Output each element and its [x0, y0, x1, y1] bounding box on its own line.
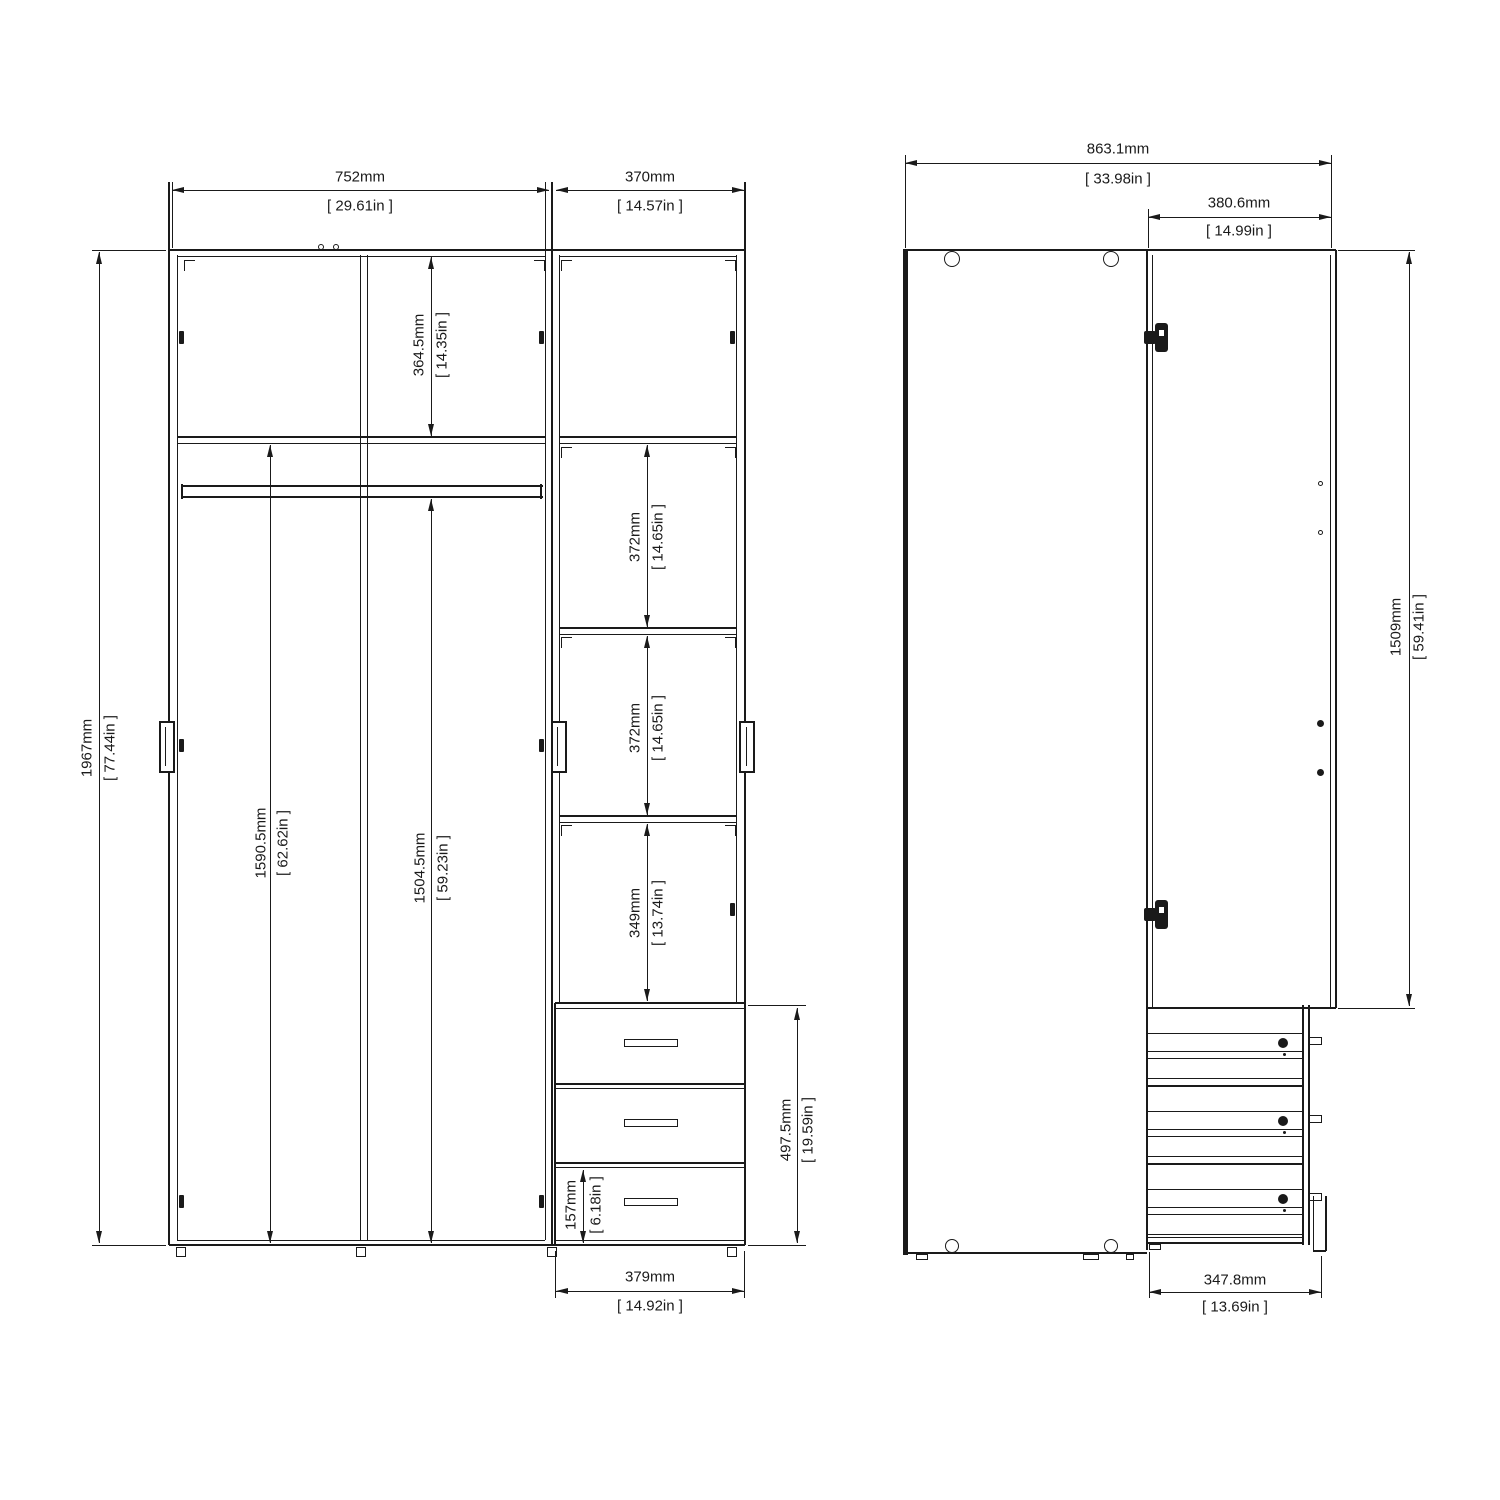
dimension-label-in: [ 33.98in ]	[1085, 172, 1151, 187]
dimension-arrow-icon	[794, 1008, 800, 1020]
dimension-label-mm: 157mm	[564, 1180, 579, 1230]
shelf-bracket-icon	[725, 637, 736, 648]
dimension-arrow-icon	[267, 445, 273, 457]
dimension-label-mm: 364.5mm	[412, 314, 427, 377]
drawer-knob	[1278, 1194, 1288, 1204]
dimension-arrow-icon	[732, 1288, 744, 1294]
door-handle-detail	[557, 727, 558, 766]
hinge-mark-icon	[539, 1195, 544, 1208]
dimension-arrow-icon	[172, 187, 184, 193]
drawer-side-rail	[1147, 1051, 1303, 1052]
dimension-arrow-icon	[644, 636, 650, 648]
cabinet-right-edge-inner	[736, 255, 737, 1003]
side-panel-back-edge	[903, 250, 908, 1255]
dimension-arrow-icon	[1406, 252, 1412, 264]
dimension-label-in: [ 29.61in ]	[327, 199, 393, 214]
dimension-line	[1148, 217, 1331, 218]
dimension-label-mm: 349mm	[628, 888, 643, 938]
dimension-label-in: [ 77.44in ]	[103, 715, 118, 781]
drawer-handle	[624, 1039, 678, 1047]
drawer-handle	[624, 1119, 678, 1127]
drawer-side-rail	[1147, 1033, 1303, 1034]
hanging-rod	[182, 485, 543, 487]
dimension-arrow-icon	[732, 187, 744, 193]
cabinet-front-edge	[1146, 250, 1148, 1250]
runner-bracket	[1313, 1250, 1326, 1252]
drawer-runner-tab	[1309, 1115, 1322, 1123]
dimension-label-mm: 372mm	[628, 703, 643, 753]
shelf-bracket-icon	[561, 825, 572, 836]
drawer-side-rail	[1147, 1234, 1303, 1235]
dimension-line	[556, 190, 744, 191]
dimension-arrow-icon	[267, 1231, 273, 1243]
dimension-arrow-icon	[1406, 994, 1412, 1006]
cabinet-top-inner	[177, 256, 545, 257]
dimension-label-in: [ 59.41in ]	[1412, 594, 1427, 660]
screw-hole	[1318, 530, 1323, 535]
dimension-arrow-icon	[1319, 214, 1331, 220]
cabinet-left-edge-inner	[177, 255, 178, 1240]
shelf	[559, 627, 736, 629]
cam-dot	[318, 244, 324, 250]
dimension-label-mm: 1509mm	[1389, 598, 1404, 656]
dimension-arrow-icon	[537, 187, 549, 193]
drawer-side-rail	[1147, 1156, 1303, 1157]
dimension-line	[1409, 252, 1410, 1006]
dimension-line	[647, 824, 648, 1001]
shelf-bracket-icon	[561, 637, 572, 648]
shelf	[559, 436, 736, 438]
dimension-arrow-icon	[644, 989, 650, 1001]
shelf-bracket-icon	[725, 825, 736, 836]
hinge-mark-icon	[730, 903, 735, 916]
dimension-line	[797, 1008, 798, 1243]
foot	[547, 1247, 557, 1257]
door-edge-inner	[1152, 255, 1153, 1008]
drawer-side-rail	[1147, 1214, 1303, 1215]
dimension-arrow-icon	[1149, 1289, 1161, 1295]
shelf	[559, 443, 736, 444]
dimension-arrow-icon	[428, 499, 434, 511]
shelf-bracket-icon	[561, 447, 572, 458]
dimension-arrow-icon	[644, 803, 650, 815]
dimension-label-mm: 497.5mm	[779, 1099, 794, 1162]
hinge-icon	[1155, 323, 1168, 352]
drawer-divider	[555, 1088, 745, 1089]
dimension-arrow-icon	[580, 1170, 586, 1182]
dimension-label-mm: 370mm	[625, 170, 675, 185]
dimension-arrow-icon	[96, 252, 102, 264]
hinge-icon	[1155, 900, 1168, 929]
hinge-icon	[1144, 908, 1156, 921]
drawer-knob-screw	[1283, 1131, 1286, 1134]
dimension-label-in: [ 14.92in ]	[617, 1299, 683, 1314]
foot	[356, 1247, 366, 1257]
drawer-side-top	[1147, 1163, 1303, 1165]
door-handle-detail	[165, 727, 166, 766]
shelf	[559, 634, 736, 635]
dimension-label-in: [ 59.23in ]	[436, 835, 451, 901]
drawer-knob-screw	[1283, 1053, 1286, 1056]
hanging-rod-end	[540, 484, 542, 499]
cam-dot	[333, 244, 339, 250]
dimension-label-in: [ 6.18in ]	[589, 1176, 604, 1234]
dimension-label-in: [ 62.62in ]	[276, 810, 291, 876]
dimension-label-in: [ 14.65in ]	[651, 695, 666, 761]
hinge-notch	[1159, 330, 1164, 336]
right-column-left-edge	[559, 255, 560, 1003]
door-handle	[159, 721, 175, 773]
dimension-arrow-icon	[580, 1231, 586, 1243]
dimension-arrow-icon	[556, 187, 568, 193]
cam-lock-circle	[945, 1239, 959, 1253]
cabinet-top-inner	[559, 256, 736, 257]
dimension-arrow-icon	[644, 824, 650, 836]
drawer-knob-screw	[1283, 1209, 1286, 1212]
shelf-bracket-icon	[725, 447, 736, 458]
hanging-rod	[182, 496, 543, 498]
drawer-divider	[555, 1083, 745, 1085]
dimension-label-in: [ 14.57in ]	[617, 199, 683, 214]
screw-hole	[1318, 481, 1323, 486]
shelf-bracket-icon	[561, 260, 572, 271]
dimension-label-mm: 1590.5mm	[254, 808, 269, 879]
cabinet-bottom	[169, 1244, 745, 1246]
center-divider	[360, 255, 361, 1240]
cabinet-bottom-inner	[177, 1240, 545, 1241]
dimension-label-in: [ 13.74in ]	[651, 880, 666, 946]
hinge-mark-icon	[179, 739, 184, 752]
dimension-label-mm: 379mm	[625, 1270, 675, 1285]
hinge-mark-icon	[730, 331, 735, 344]
drawer-side-bottom	[1147, 1237, 1303, 1238]
dimension-label-in: [ 14.99in ]	[1206, 224, 1272, 239]
drawer-side-top	[1147, 1085, 1303, 1087]
drawer-knob	[1278, 1116, 1288, 1126]
dimension-arrow-icon	[96, 1231, 102, 1243]
drawer-divider	[555, 1167, 745, 1168]
dimension-label-in: [ 14.65in ]	[651, 504, 666, 570]
dimension-label-mm: 1504.5mm	[413, 833, 428, 904]
shelf-bracket-icon	[725, 260, 736, 271]
dimension-line	[647, 445, 648, 627]
dimension-label-in: [ 19.59in ]	[801, 1097, 816, 1163]
dimension-line	[99, 252, 100, 1243]
drawer-side-bottom	[1147, 1242, 1303, 1244]
drawer-runner-tab	[1309, 1193, 1322, 1201]
dimension-arrow-icon	[905, 160, 917, 166]
center-divider	[367, 255, 368, 1240]
door-gap-line	[551, 182, 553, 1245]
door-handle	[551, 721, 567, 773]
hinge-icon	[1144, 331, 1156, 344]
wardrobe-technical-drawing: 752mm[ 29.61in ]370mm[ 14.57in ]1967mm[ …	[0, 0, 1500, 1500]
foot	[916, 1254, 928, 1260]
extension-line	[748, 1005, 806, 1006]
extension-line	[748, 1245, 806, 1246]
dimension-arrow-icon	[1309, 1289, 1321, 1295]
drawer-side-rail	[1147, 1129, 1303, 1130]
hinge-mark-icon	[179, 331, 184, 344]
dimension-label-mm: 752mm	[335, 170, 385, 185]
door-handle-detail	[746, 727, 747, 766]
dimension-line	[556, 1291, 744, 1292]
dimension-label-mm: 1967mm	[80, 719, 95, 777]
extension-line	[905, 155, 906, 248]
drawer-divider	[555, 1162, 745, 1164]
cam-lock-circle	[1103, 251, 1119, 267]
dimension-label-in: [ 14.35in ]	[435, 312, 450, 378]
cam-lock-circle	[944, 251, 960, 267]
extension-line	[1338, 250, 1415, 251]
dimension-arrow-icon	[794, 1231, 800, 1243]
door-edge-inner	[1330, 255, 1331, 1008]
foot	[1126, 1254, 1134, 1260]
top-shelf	[177, 443, 545, 444]
dimension-line	[1149, 1292, 1321, 1293]
drawer-stack-top	[555, 1008, 745, 1009]
extension-line	[92, 250, 166, 251]
hanging-rod-end	[181, 484, 183, 499]
runner-bracket	[1325, 1196, 1327, 1251]
extension-line	[92, 1245, 166, 1246]
drawer-knob	[1278, 1038, 1288, 1048]
screw-dot	[1317, 769, 1324, 776]
dimension-label-mm: 863.1mm	[1087, 142, 1150, 157]
dimension-line	[431, 257, 432, 436]
drawer-side-rail	[1147, 1207, 1303, 1208]
foot	[1149, 1244, 1161, 1250]
dimension-arrow-icon	[428, 257, 434, 269]
dimension-arrow-icon	[1319, 160, 1331, 166]
hinge-mark-icon	[539, 331, 544, 344]
dimension-arrow-icon	[644, 445, 650, 457]
dimension-arrow-icon	[428, 1231, 434, 1243]
top-shelf	[177, 436, 545, 438]
drawer-side-panel	[1302, 1005, 1304, 1245]
shelf-bracket-icon	[184, 260, 195, 271]
drawer-side-top	[1147, 1007, 1303, 1009]
drawer-runner-tab	[1309, 1037, 1322, 1045]
dimension-line	[172, 190, 549, 191]
dimension-line	[431, 499, 432, 1243]
drawer-side-rail	[1147, 1058, 1303, 1059]
door-gap-line	[545, 182, 546, 1240]
cam-lock-circle	[1104, 1239, 1118, 1253]
dimension-label-in: [ 13.69in ]	[1202, 1300, 1268, 1315]
cabinet-left-edge	[168, 182, 170, 1245]
drawer-side-rail	[1147, 1136, 1303, 1137]
door-front-edge	[1335, 250, 1337, 1008]
dimension-line	[270, 445, 271, 1243]
foot	[727, 1247, 737, 1257]
dimension-arrow-icon	[644, 615, 650, 627]
cabinet-top	[169, 249, 745, 251]
hinge-mark-icon	[539, 739, 544, 752]
dimension-arrow-icon	[1148, 214, 1160, 220]
extension-line	[1338, 1008, 1415, 1009]
cabinet-right-edge	[744, 182, 746, 1245]
foot	[1083, 1254, 1099, 1260]
dimension-label-mm: 380.6mm	[1208, 196, 1271, 211]
shelf-bracket-icon	[534, 260, 545, 271]
drawer-side-rail	[1147, 1078, 1303, 1079]
drawer-stack-left-edge	[554, 1003, 556, 1245]
drawer-side-panel	[1308, 1005, 1310, 1245]
drawer-side-rail	[1147, 1189, 1303, 1190]
drawer-handle	[624, 1198, 678, 1206]
hinge-mark-icon	[179, 1195, 184, 1208]
dimension-line	[905, 163, 1331, 164]
drawer-stack-top	[555, 1002, 745, 1004]
screw-dot	[1317, 720, 1324, 727]
dimension-label-mm: 347.8mm	[1204, 1273, 1267, 1288]
door-handle	[739, 721, 755, 773]
dimension-label-mm: 372mm	[628, 512, 643, 562]
shelf	[559, 822, 736, 823]
foot	[176, 1247, 186, 1257]
hinge-notch	[1159, 907, 1164, 913]
door-top	[1147, 249, 1336, 251]
drawer-side-rail	[1147, 1111, 1303, 1112]
dimension-arrow-icon	[556, 1288, 568, 1294]
dimension-arrow-icon	[428, 424, 434, 436]
runner-bracket	[1313, 1196, 1314, 1251]
shelf	[559, 815, 736, 817]
dimension-line	[647, 636, 648, 815]
extension-line	[1331, 155, 1332, 248]
